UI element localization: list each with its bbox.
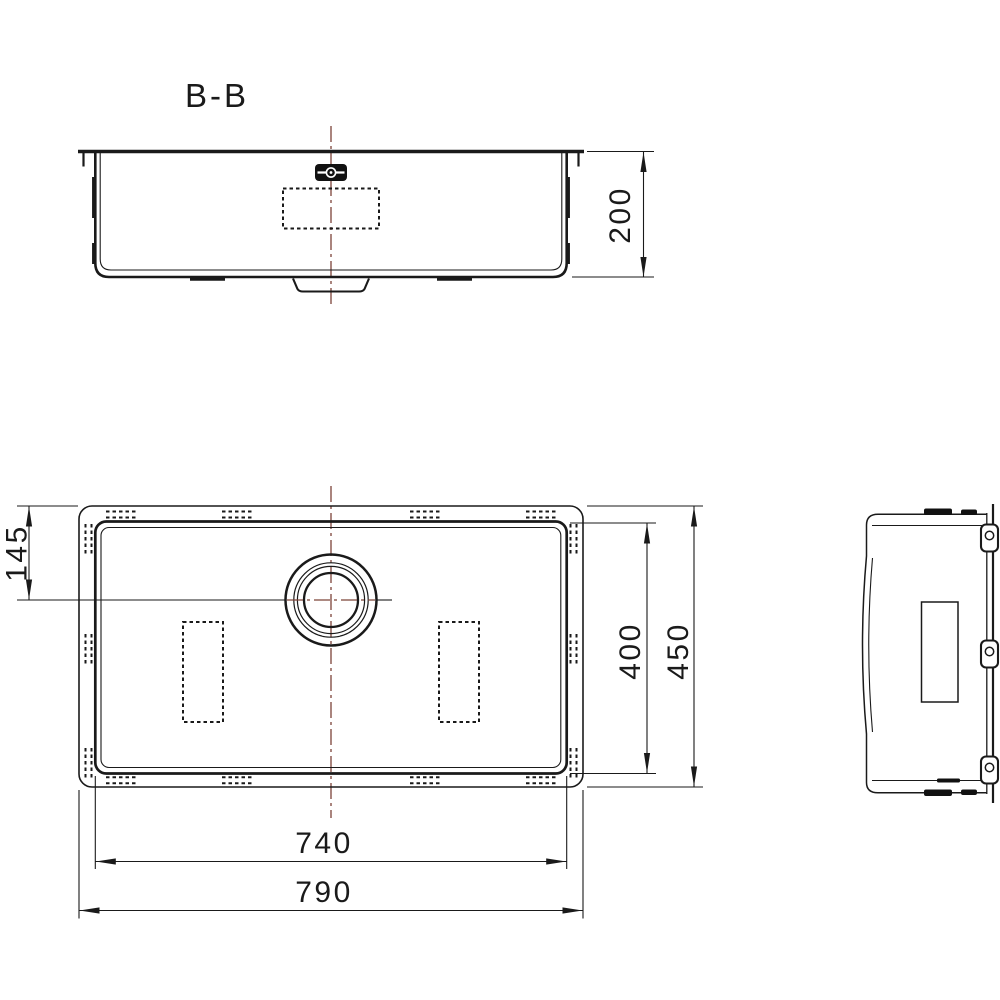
dim-text-200: 200 [604,186,637,244]
clip-bracket-top [981,525,998,552]
dim-text-145: 145 [1,524,34,582]
dim-depth-200: 200 [572,152,654,278]
edge-clips-left [86,524,92,778]
clip-bracket-bottom [981,757,998,784]
mounting-clip-top-icon [315,164,347,181]
screw-icon [985,647,993,655]
screw-icon [985,763,993,771]
dim-drain-145: 145 [1,506,79,600]
bowl-bottom-curve [869,558,873,732]
plan-view: 145 400 450 740 [1,486,704,919]
dim-text-740: 740 [295,827,353,860]
side-template-rect [922,602,959,702]
drawing-sheet: B-B [0,0,1000,1000]
side-body-outline [863,514,987,793]
dim-text-790: 790 [295,876,353,909]
edge-clips-right [571,524,577,778]
reinforcement-pad-right [439,622,479,722]
technical-drawing: B-B [0,0,1000,1000]
screw-icon [985,531,993,539]
clip-bracket-middle [981,641,998,668]
dim-text-400: 400 [614,622,647,680]
section-view: B-B [78,77,654,308]
dim-text-450: 450 [662,622,695,680]
section-view-label: B-B [185,77,249,114]
side-view [863,504,999,803]
reinforcement-pad-left [183,622,223,722]
fastening-tabs [924,509,977,797]
